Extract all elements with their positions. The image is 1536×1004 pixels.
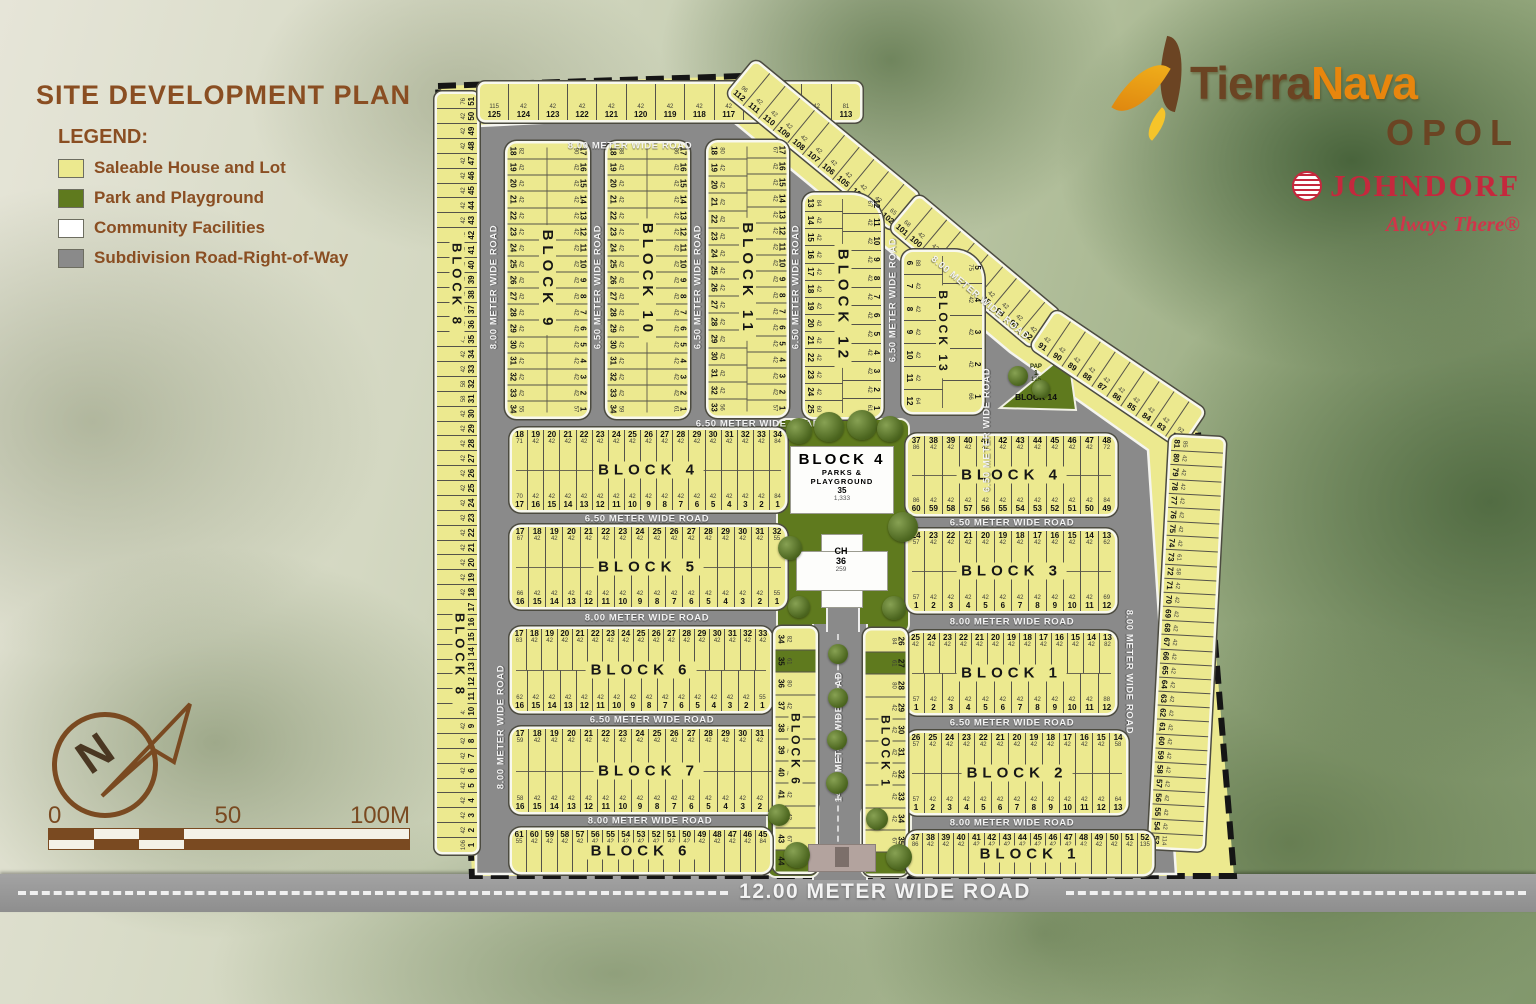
road-label: 6.50 METER WIDE ROAD (593, 225, 604, 349)
road-label: 8.00 METER WIDE ROAD (1124, 610, 1135, 734)
brand-tierra: Tierra (1190, 57, 1311, 109)
block-strip-13: 575442342242166886427428429421042116412B… (904, 252, 982, 412)
block-label: BLOCK 4 (593, 462, 704, 479)
tree-icon (786, 418, 812, 444)
block-label: BLOCK 11 (739, 217, 756, 340)
tree-icon (814, 412, 844, 442)
road-label: 8.00 METER WIDE ROAD (950, 818, 1074, 829)
legend-item: Park and Playground (58, 188, 348, 208)
block-strip-1-entrance: 2684276128802942304231423242334234423567… (866, 631, 906, 874)
tree-icon (1008, 366, 1028, 386)
johndorf-crest-icon (1292, 171, 1322, 201)
block-strip-11: 1767164215421442134212421142104294284274… (709, 143, 787, 416)
ch-label: CH (796, 546, 886, 556)
legend-item: Saleable House and Lot (58, 158, 348, 178)
block-label: BLOCK 12 (835, 244, 852, 368)
scale-bar-graphic (48, 828, 410, 850)
road-label-12m: 12.00 METER WIDE ROAD (739, 880, 1031, 904)
tree-icon (847, 410, 877, 440)
legend-swatch-park (58, 189, 84, 208)
road-label: 6.50 METER WIDE ROAD (982, 368, 993, 492)
block-label: BLOCK 13 (936, 285, 950, 378)
park-area: 1,333 (791, 495, 893, 502)
block-strip-2: 2657254224422342224221422042194218421742… (908, 733, 1126, 813)
block-strip-9: 1790164215421442134212421142104294284274… (508, 144, 588, 417)
tree-icon (828, 688, 848, 708)
block-strip-1-south: 3786384239424042414242424342444245424642… (908, 833, 1152, 874)
block-strip-3: 2457234222422142204219421842174216421542… (908, 531, 1115, 611)
road-label: 8.00 METER WIDE ROAD (568, 141, 692, 152)
road-label: 6.50 METER WIDE ROAD (693, 225, 704, 349)
scale-bar: 0 50 100M (48, 802, 410, 850)
road-label: 8.00 METER WIDE ROAD (489, 225, 500, 349)
block-strip-6-entrance: 8234613580364237423842394240424142426743… (776, 629, 816, 872)
tree-icon (877, 416, 903, 442)
block-label: BLOCK 1 (879, 710, 893, 794)
park-name: PARKS & PLAYGROUND (791, 468, 893, 486)
block-strip-1: 2542244223422242214220421942184217421642… (908, 633, 1115, 713)
block-strip-10: 1786164215421442134212421142104294284274… (608, 144, 688, 417)
legend-swatch-saleable (58, 159, 84, 178)
tree-icon (826, 772, 848, 794)
block-strip-7: 1759184219422042214222422342244225422642… (512, 729, 785, 812)
legend-label: Community Facilities (94, 218, 265, 238)
block-label: BLOCK 6 (586, 662, 697, 679)
legend-item: Subdivision Road-Right-of-Way (58, 248, 348, 268)
ch-area: 259 (796, 566, 886, 573)
scale-tick-100: 100M (350, 802, 410, 830)
block-label: BLOCK 4 (956, 467, 1067, 484)
legend-item: Community Facilities (58, 218, 348, 238)
tree-icon (888, 512, 918, 542)
block-label: BLOCK 1 (975, 845, 1086, 862)
park-block-label: BLOCK 4 (791, 451, 893, 468)
road-label: 8.00 METER WIDE ROAD (585, 613, 709, 624)
block-label: BLOCK 10 (639, 218, 656, 342)
legend-label: Saleable House and Lot (94, 158, 286, 178)
developer-logo: JOHNDORF (1190, 168, 1520, 204)
legend-heading: LEGEND: (58, 126, 148, 149)
tree-icon (1032, 380, 1050, 398)
block-label: BLOCK 7 (593, 762, 704, 779)
brand-location: OPOL (1190, 112, 1520, 154)
gate-post (835, 847, 849, 867)
tree-icon (784, 842, 810, 868)
block-strip-perimeter-left: 1061422423424425426427428429421058115812… (437, 94, 477, 852)
community-hall: CH 36 259 (796, 534, 886, 606)
legend-label: Subdivision Road-Right-of-Way (94, 248, 348, 268)
road-label: 8.00 METER WIDE ROAD (950, 617, 1074, 628)
block-label: BLOCK 6 (789, 708, 803, 792)
block-strip-12: 1267114210429428427426425424423422421618… (805, 195, 881, 417)
block-8-label: BLOCK 8 (450, 231, 465, 341)
road-label: 6.50 METER WIDE ROAD (585, 514, 709, 525)
legend-swatch-facilities (58, 219, 84, 238)
entrance-gate (808, 844, 876, 872)
ch-lot-number: 36 (796, 556, 886, 566)
road-label: 6.50 METER WIDE ROAD (590, 715, 714, 726)
block-label: BLOCK 5 (593, 559, 704, 576)
park-sign: BLOCK 4 PARKS & PLAYGROUND 35 1,333 (790, 446, 894, 514)
block-strip-6: 1763184219422042214222422342244225422642… (512, 629, 770, 711)
tree-icon (882, 596, 906, 620)
block-strip-4-east: 3786384239424042414242424342444245424642… (908, 436, 1115, 514)
brand-name: TierraNava (1190, 56, 1520, 110)
compass: N (40, 690, 230, 810)
block-strip-6-south: 6155604259425842574256425542544253425242… (512, 830, 770, 872)
block-strip-5: 1767184219422042214222422342244225422642… (512, 527, 785, 607)
block-strip-4-west: 1871194220422142224223422442254226422742… (512, 430, 785, 510)
north-arrow-icon (40, 690, 230, 810)
page-title: SITE DEVELOPMENT PLAN (36, 80, 411, 111)
legend-label: Park and Playground (94, 188, 264, 208)
block-label: BLOCK 6 (586, 843, 697, 860)
developer-name: JOHNDORF (1330, 168, 1520, 203)
block-label: BLOCK 9 (539, 225, 556, 336)
tree-icon (827, 730, 847, 750)
legend-swatch-road (58, 249, 84, 268)
road-label: 8.00 METER WIDE ROAD (496, 665, 507, 789)
tree-icon (886, 844, 912, 870)
tree-icon (866, 808, 888, 830)
tree-icon (828, 644, 848, 664)
tree-icon (778, 536, 802, 560)
park-lot-number: 35 (791, 486, 893, 495)
tree-icon (768, 804, 790, 826)
road-label: 6.50 METER WIDE ROAD (950, 518, 1074, 529)
scale-tick-0: 0 (48, 802, 61, 830)
scale-tick-50: 50 (215, 802, 242, 830)
block-label: BLOCK 2 (962, 765, 1073, 782)
block-label: BLOCK 1 (956, 665, 1067, 682)
legend: Saleable House and Lot Park and Playgrou… (58, 158, 348, 268)
brand-nava: Nava (1311, 57, 1417, 109)
road-label: 8.00 METER WIDE ROAD (588, 816, 712, 827)
road-label: 6.50 METER WIDE ROAD (791, 225, 802, 349)
block-8-label: BLOCK 8 (453, 601, 468, 711)
road-label: 6.50 METER WIDE ROAD (950, 718, 1074, 729)
road-label: 6.50 METER WIDE ROAD (888, 238, 899, 362)
developer-tagline: Always There® (1190, 212, 1520, 237)
block-label: BLOCK 3 (956, 563, 1067, 580)
tree-icon (788, 596, 810, 618)
